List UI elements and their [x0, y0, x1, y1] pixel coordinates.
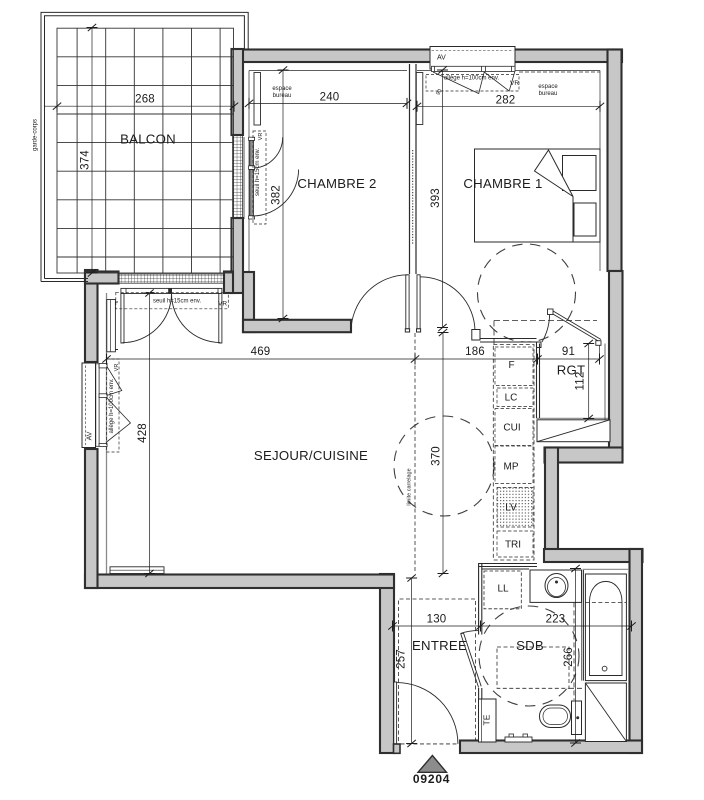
- svg-text:limite carrelage: limite carrelage: [407, 468, 413, 505]
- svg-text:186: 186: [465, 346, 485, 358]
- svg-text:223: 223: [546, 614, 566, 626]
- svg-text:CHAMBRE 2: CHAMBRE 2: [297, 176, 376, 191]
- svg-text:F: F: [508, 360, 514, 371]
- svg-text:SDB: SDB: [516, 638, 544, 653]
- svg-text:seuil h=15cm env.: seuil h=15cm env.: [153, 299, 201, 305]
- svg-text:268: 268: [135, 93, 155, 105]
- svg-text:LL: LL: [497, 584, 509, 595]
- svg-text:bureau: bureau: [539, 91, 558, 97]
- svg-text:AV: AV: [87, 431, 94, 440]
- svg-text:seuil h=15cm env.: seuil h=15cm env.: [255, 148, 261, 196]
- svg-text:130: 130: [427, 614, 447, 626]
- svg-text:LC: LC: [505, 393, 518, 404]
- svg-text:BALCON: BALCON: [120, 132, 176, 147]
- svg-text:VR: VR: [114, 364, 120, 372]
- svg-text:91: 91: [562, 346, 575, 358]
- svg-text:CHAMBRE 1: CHAMBRE 1: [463, 176, 542, 191]
- svg-text:257: 257: [396, 649, 408, 669]
- svg-text:bureau: bureau: [273, 93, 292, 99]
- svg-text:VR: VR: [258, 133, 264, 141]
- svg-text:espace: espace: [272, 86, 292, 92]
- svg-text:370: 370: [431, 446, 443, 466]
- svg-text:TRI: TRI: [505, 540, 521, 551]
- svg-text:266: 266: [563, 647, 575, 667]
- svg-text:VR: VR: [510, 80, 519, 87]
- svg-text:TE: TE: [482, 714, 492, 725]
- svg-text:09204: 09204: [413, 772, 450, 786]
- svg-text:garde-corps: garde-corps: [33, 119, 39, 151]
- svg-text:espace: espace: [538, 84, 558, 90]
- svg-text:CUI: CUI: [503, 423, 520, 434]
- svg-text:240: 240: [320, 92, 340, 104]
- svg-text:MP: MP: [504, 462, 519, 473]
- svg-text:382: 382: [271, 185, 283, 205]
- svg-text:428: 428: [137, 423, 149, 443]
- svg-text:282: 282: [496, 95, 516, 107]
- svg-text:112: 112: [575, 372, 587, 391]
- svg-text:allège h=100cm env.: allège h=100cm env.: [109, 378, 115, 433]
- svg-text:393: 393: [430, 188, 442, 208]
- svg-text:374: 374: [80, 150, 92, 170]
- svg-text:VR: VR: [218, 301, 227, 308]
- svg-text:469: 469: [251, 346, 271, 358]
- svg-text:AV: AV: [437, 55, 446, 62]
- svg-text:SEJOUR/CUISINE: SEJOUR/CUISINE: [254, 448, 368, 463]
- svg-text:allège h=100cm env.: allège h=100cm env.: [444, 76, 499, 82]
- svg-text:ENTREE: ENTREE: [412, 638, 467, 653]
- svg-text:LV: LV: [505, 503, 517, 514]
